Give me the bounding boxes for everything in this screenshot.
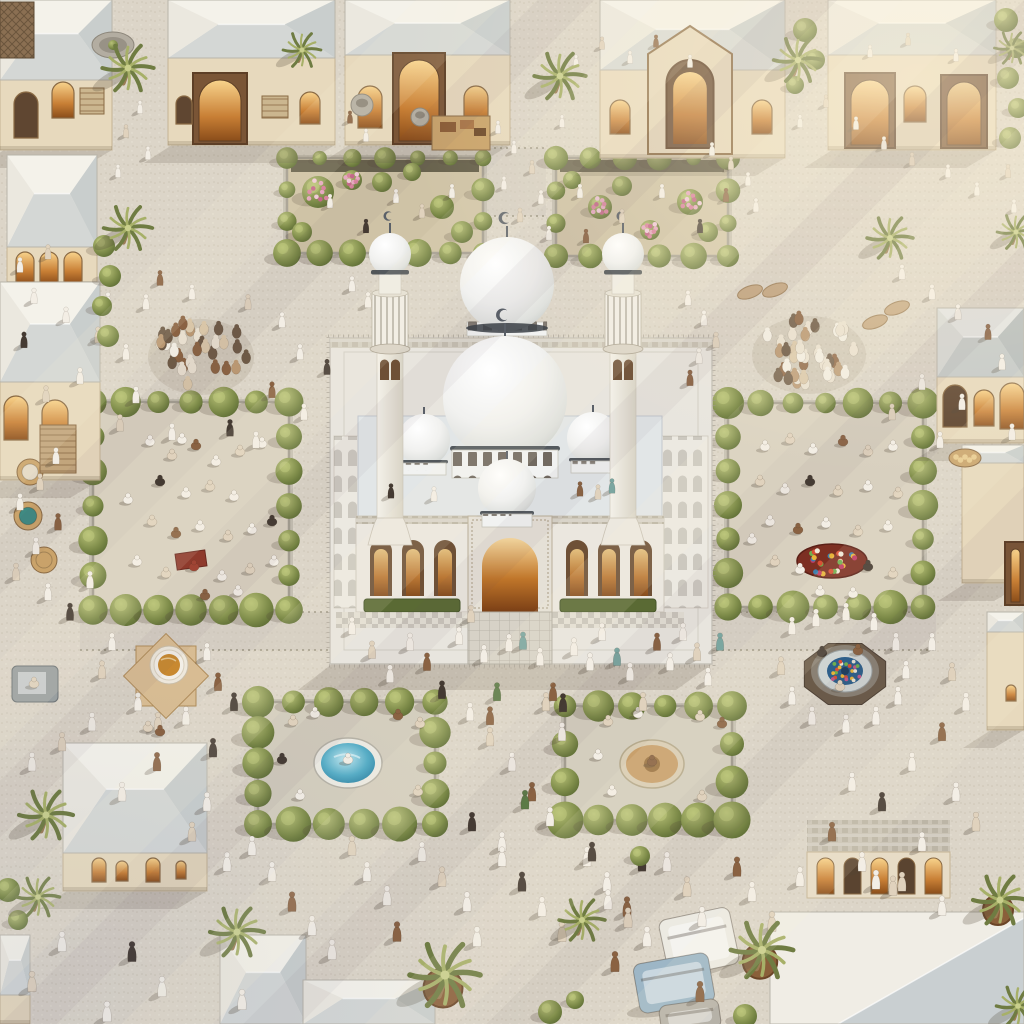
dark-arched-window	[176, 96, 192, 124]
colonnade-arch	[925, 858, 942, 894]
feast-dish	[815, 548, 820, 553]
hedge-bush	[630, 846, 650, 866]
feast-dish	[817, 561, 822, 566]
dark-arched-window	[14, 92, 38, 138]
flower-cluster	[347, 178, 352, 183]
hedge-bush	[99, 265, 121, 287]
flower-cluster	[321, 186, 326, 191]
feast-dish	[812, 555, 817, 560]
flower-cluster	[354, 172, 359, 177]
hedge-bush	[78, 526, 107, 555]
lit-arched-window	[64, 252, 82, 284]
lit-arched-window	[52, 82, 74, 118]
hedge-bush	[551, 768, 579, 796]
flower-cluster	[350, 174, 355, 179]
lit-doorway	[1011, 549, 1020, 602]
flower-cluster	[320, 190, 325, 195]
hedge-bush	[239, 593, 274, 628]
hedge-bush	[654, 695, 676, 717]
big-roof-house	[770, 912, 1024, 1024]
village-mosque-aerial-illustration	[0, 0, 1024, 1024]
lit-doorway	[199, 80, 241, 141]
pergola	[0, 2, 34, 58]
flower-cluster	[318, 197, 323, 202]
house	[0, 155, 97, 303]
hedge-bush	[278, 565, 299, 586]
flower-cluster	[314, 195, 319, 200]
